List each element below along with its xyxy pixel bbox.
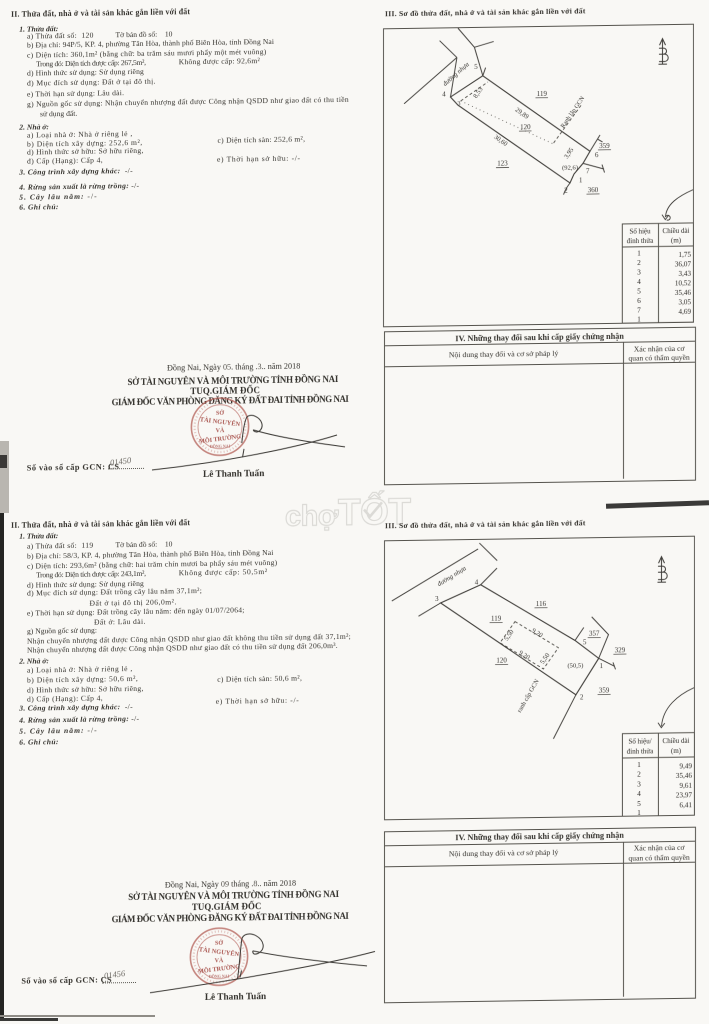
svg-text:4: 4 xyxy=(442,90,446,98)
svg-text:1: 1 xyxy=(637,315,641,323)
svg-text:3: 3 xyxy=(457,100,460,107)
svg-text:9,20: 9,20 xyxy=(530,627,544,639)
svg-text:23,97: 23,97 xyxy=(675,791,692,799)
svg-text:29,89: 29,89 xyxy=(514,107,531,122)
svg-text:4: 4 xyxy=(637,278,641,286)
svg-text:6,41: 6,41 xyxy=(679,801,692,809)
svg-text:Chiều dài: Chiều dài xyxy=(662,227,689,235)
svg-text:4: 4 xyxy=(474,578,478,586)
svg-text:3: 3 xyxy=(435,595,439,603)
svg-text:120: 120 xyxy=(520,123,531,131)
svg-text:119: 119 xyxy=(491,615,502,623)
svg-text:360: 360 xyxy=(588,186,599,194)
svg-text:5,50: 5,50 xyxy=(503,628,516,642)
svg-text:3: 3 xyxy=(637,780,641,788)
svg-text:35,46: 35,46 xyxy=(675,289,692,297)
svg-text:4,69: 4,69 xyxy=(678,308,691,316)
svg-text:đường nhựa: đường nhựa xyxy=(436,565,468,588)
svg-text:5,50: 5,50 xyxy=(539,652,552,666)
svg-text:(50,5): (50,5) xyxy=(567,662,583,669)
svg-text:1: 1 xyxy=(637,249,641,257)
svg-text:ranh cấp GCN: ranh cấp GCN xyxy=(516,678,541,714)
svg-text:(m): (m) xyxy=(671,236,682,244)
svg-text:35,46: 35,46 xyxy=(675,772,692,780)
svg-text:2: 2 xyxy=(637,771,641,779)
svg-text:đỉnh thửa: đỉnh thửa xyxy=(626,747,653,755)
svg-text:Số hiệu: Số hiệu xyxy=(629,227,651,235)
svg-text:359: 359 xyxy=(598,686,609,694)
svg-text:Chiều dài: Chiều dài xyxy=(662,737,689,745)
svg-text:2: 2 xyxy=(564,187,568,195)
svg-text:(92,6): (92,6) xyxy=(562,164,578,171)
svg-text:1: 1 xyxy=(579,176,583,184)
svg-text:123: 123 xyxy=(497,159,508,167)
svg-text:116: 116 xyxy=(535,600,546,608)
svg-text:Ranh lập GCN: Ranh lập GCN xyxy=(559,95,586,130)
svg-text:3,05: 3,05 xyxy=(678,298,691,306)
svg-text:8,53: 8,53 xyxy=(472,86,485,100)
svg-text:1: 1 xyxy=(637,809,641,817)
svg-text:3,95: 3,95 xyxy=(563,146,576,160)
svg-text:2: 2 xyxy=(580,693,584,701)
svg-text:120: 120 xyxy=(496,656,507,664)
svg-text:357: 357 xyxy=(589,630,600,638)
svg-text:10,52: 10,52 xyxy=(675,279,692,287)
svg-text:3: 3 xyxy=(637,268,641,276)
svg-text:4: 4 xyxy=(637,790,641,798)
svg-text:119: 119 xyxy=(537,90,548,98)
svg-text:1,75: 1,75 xyxy=(678,251,691,259)
svg-text:đỉnh thửa: đỉnh thửa xyxy=(627,237,654,245)
svg-text:6: 6 xyxy=(595,151,599,159)
svg-text:5: 5 xyxy=(637,800,641,808)
svg-text:359: 359 xyxy=(599,142,610,150)
svg-text:1: 1 xyxy=(637,761,641,769)
svg-text:329: 329 xyxy=(614,646,625,654)
svg-text:5: 5 xyxy=(474,63,478,71)
svg-text:9,61: 9,61 xyxy=(679,782,692,790)
svg-text:đường nhựa: đường nhựa xyxy=(442,61,471,88)
svg-text:1: 1 xyxy=(599,662,603,670)
svg-text:36,07: 36,07 xyxy=(675,260,692,268)
svg-text:6: 6 xyxy=(637,297,641,305)
svg-text:5: 5 xyxy=(583,638,587,646)
svg-text:30,60: 30,60 xyxy=(492,134,509,149)
svg-text:(m): (m) xyxy=(671,747,682,755)
svg-text:2: 2 xyxy=(637,259,641,267)
svg-text:7: 7 xyxy=(586,167,590,175)
svg-text:Số hiệu/: Số hiệu/ xyxy=(628,737,651,745)
svg-text:5: 5 xyxy=(637,287,641,295)
svg-text:9,49: 9,49 xyxy=(679,762,692,770)
svg-text:3,43: 3,43 xyxy=(678,270,691,278)
svg-text:7: 7 xyxy=(637,306,641,314)
